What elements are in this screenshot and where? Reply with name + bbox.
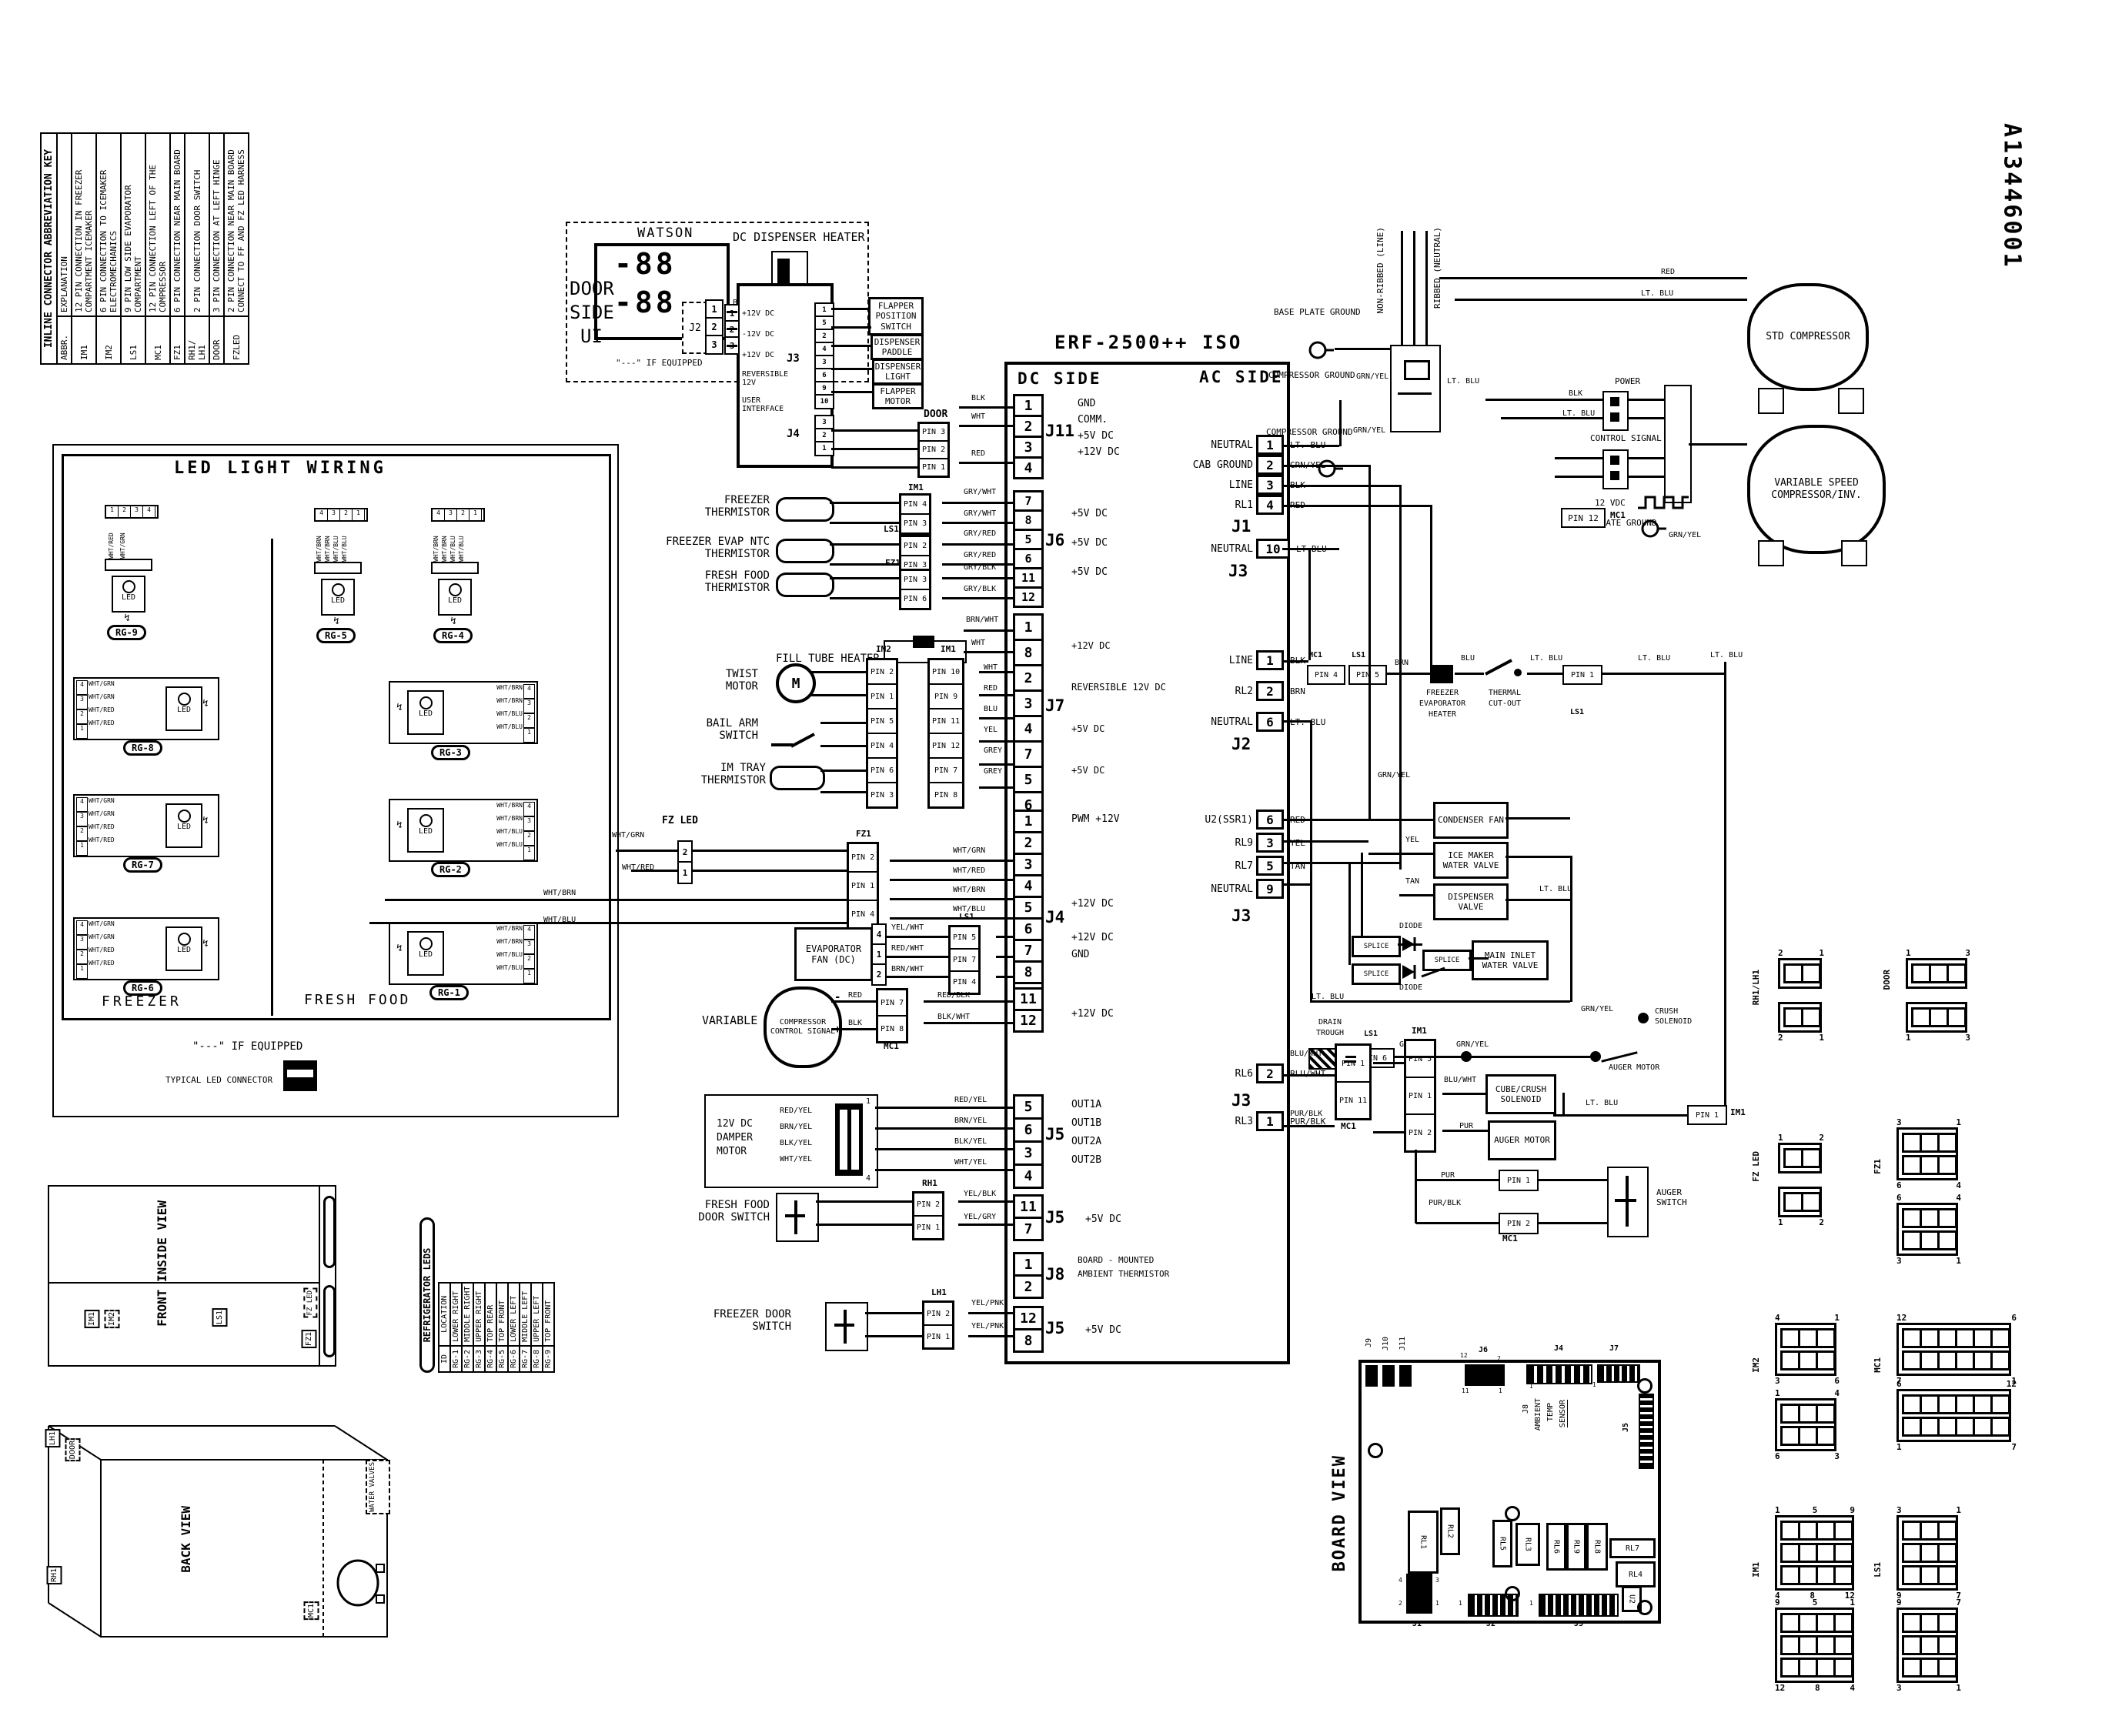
front-view-im2: IM2 [105,1310,120,1328]
board-view-title: BOARD VIEW [1330,1454,1349,1571]
back-view-door: DOOR [65,1438,81,1461]
led-rg8: 4321 WHT/GRNWHT/GRNWHT/REDWHT/RED LED ↯ [73,677,219,740]
freezer-thermistor-glyph [776,497,834,522]
vdc-label: 12 VDC [1595,499,1626,509]
thermal-cutout-label: THERMALCUT-OUT [1478,688,1532,709]
ground-icon [1318,456,1344,482]
front-view-title: FRONT INSIDE VIEW [155,1200,169,1327]
fz-door-switch-label: FREEZER DOORSWITCH [683,1308,791,1333]
document-number: A13446001 [1998,123,2025,269]
ring-terminal [1638,1013,1649,1023]
abbr-key-row: FZLED 2 PIN CONNECTION NEAR MAIN BOARD C… [224,133,249,364]
fz-door-switch-glyph [825,1302,868,1351]
back-view: LH1 DOOR RH1 BACK VIEW MC1 WATER VALVES [42,1420,396,1674]
led-rg1: LED ↯ WHT/BRNWHT/BRNWHT/BLUWHT/BLU 4321 [389,922,538,985]
dispenser-valve: DISPENSER VALVE [1433,883,1509,920]
evaporator-fan: EVAPORATORFAN (DC) [794,927,873,981]
abbr-key-col1: ABBR. [57,316,72,364]
watson-if-equipped: "---" IF EQUIPPED [616,359,703,369]
evap-fan-pins: 412 [871,926,887,986]
ground-icon [1308,337,1335,363]
abbr-key-row: DOOR 3 PIN CONNECTION AT LEFT HINGE [209,133,224,364]
mc1-block: PIN 1PIN 11 [1335,1043,1372,1120]
rg9-label: RG-9 [107,625,146,640]
compressor-relay-box [1390,345,1441,432]
ff-door-rh1-conn: PIN 2PIN 1 [912,1191,944,1240]
ff-door-switch-label: FRESH FOODDOOR SWITCH [662,1199,770,1224]
back-view-mc1: MC1 [304,1601,319,1620]
watson-j2-pins: 123 [705,302,723,355]
fresh-food-section-label: FRESH FOOD [304,993,410,1009]
zap-icon: ↯ [105,613,149,624]
neutral-cord-label: RIBBED (NEUTRAL) [1433,227,1443,309]
back-view-title: BACK VIEW [179,1506,193,1573]
door-side-ui-label: DOORSIDEUI [570,277,614,349]
dispenser-light: DISPENSER LIGHT [872,359,924,385]
ff-therm-conn: PIN 3PIN 6 [899,569,931,610]
abbr-key-row: FZ1 6 PIN CONNECTION NEAR MAIN BOARD [170,133,185,364]
dc-dispenser-heater-label: DC DISPENSER HEATER [733,231,865,244]
back-view-water-valves: WATER VALVES [366,1460,390,1514]
power-label: POWER [1615,377,1640,387]
auger-switch-label: AUGER SWITCH [1656,1188,1710,1207]
im2-conn: PIN 2PIN 1PIN 5PIN 4PIN 6PIN 3 [866,658,898,809]
abbr-key-col2: EXPLANATION [57,133,72,316]
ui-j3-label: J3 [787,352,800,365]
base-plate-ground-top: BASE PLATE GROUND [1274,308,1343,318]
rg2-label: RG-2 [431,862,470,877]
compressor-ground-2: COMPRESSOR GROUND [1266,428,1335,438]
abbr-key-row: IM1 12 PIN CONNECTION IN FREEZER COMPART… [72,133,96,364]
auger-switch-glyph [1607,1167,1649,1237]
j5c-pins: 128 [1013,1308,1044,1353]
abbr-key-rows: IM1 12 PIN CONNECTION IN FREEZER COMPART… [72,133,249,364]
front-inside-view: FRONT INSIDE VIEW IM1 IM2 LS1 FZ LED FZ1 [48,1185,336,1367]
ff-thermistor-label: FRESH FOODTHERMISTOR [677,569,770,594]
splice-3: SPLICE [1422,950,1472,971]
back-view-rh1: RH1 [47,1566,62,1584]
fzled-conn: 21 [677,843,693,884]
led-table-row: RG-1 LOWER RIGHT [450,1283,462,1372]
auger-motor: AUGER MOTOR [1488,1120,1556,1160]
led-table-row: RG-9 TOP FRONT [543,1283,554,1372]
j11-pins: 1234 [1013,396,1044,479]
j4-label: J4 [1045,908,1064,926]
bail-arm-switch-icon [770,722,824,753]
im1-conn: PIN 10PIN 9PIN 11PIN 12PIN 7PIN 8 [927,658,964,809]
damper-motor-box: 12V DCDAMPERMOTOR RED/YELBRN/YELBLK/YELW… [704,1094,878,1188]
if-equipped-note: "---" IF EQUIPPED [192,1040,302,1053]
ui-j3-pins: 152436910 [814,305,834,409]
led-rg2: LED ↯ WHT/BRNWHT/BRNWHT/BLUWHT/BLU 4321 [389,799,538,862]
rg1-label: RG-1 [429,985,469,1000]
pin12-box: PIN 12 [1561,508,1606,528]
watson-j2-label: J2 [682,302,708,354]
rg7-label: RG-7 [123,857,162,873]
control-connector [1602,449,1629,489]
j11-label: J11 [1045,422,1074,440]
j4-pins-a: 123456789 [1013,812,1044,1006]
front-view-fzled: FZ LED [303,1288,317,1318]
flapper-motor: FLAPPER MOTOR [872,383,924,409]
j8-label: J8 [1045,1265,1064,1284]
drain-trough-label: DRAINTROUGH [1307,1017,1353,1039]
j2-connector: LINE1BLKRL22BRNNEUTRAL6LT. BLU [1153,650,1325,743]
led-wiring-title: LED LIGHT WIRING [174,459,386,478]
j5b-pins: 117 [1013,1197,1044,1241]
ground-icon [1641,516,1667,542]
fz-door-lh1-conn: PIN 2PIN 1 [922,1300,954,1350]
ff-door-switch-glyph [776,1193,819,1242]
condenser-fan: CONDENSER FAN [1433,802,1509,839]
door-conn: PIN 3PIN 2PIN 1 [917,422,950,478]
led-table-row: RG-5 TOP FRONT [496,1283,508,1372]
back-view-lh1: LH1 [45,1429,61,1447]
main-inlet-water-valve: MAIN INLET WATER VALVE [1472,940,1549,980]
auger-motor-ground-label: AUGER MOTOR [1609,1063,1659,1073]
ui-in-pins: 123 [724,306,740,355]
led-rg9: 1234 WHT/REDWHT/GRN LED ↯ RG-9 [105,505,159,640]
twist-motor-label: TWISTMOTOR [697,668,758,693]
front-view-fz1: FZ1 [302,1330,317,1348]
j7-functions: +12V DCREVERSIBLE 12V DC+5V DC+5V DC [1071,616,1166,782]
j3bot-label: J3 [1231,1091,1251,1110]
j7-pins: 18234756 [1013,616,1044,819]
display-row2: -88 [614,286,677,320]
freezer-evap-heater-label: FREEZEREVAPORATORHEATER [1410,688,1475,720]
j7-label: J7 [1045,696,1064,715]
led-rg6: 4321 WHT/GRNWHT/GRNWHT/REDWHT/RED LED ↯ [73,917,219,980]
cube-crush-solenoid: CUBE/CRUSH SOLENOID [1485,1074,1556,1114]
abbreviation-key: INLINE CONNECTOR ABBREVIATION KEY ABBR. … [40,132,342,365]
wiring-diagram-page: A13446001 INLINE CONNECTOR ABBREVIATION … [0,0,2112,1736]
splice-2: SPLICE [1352,963,1401,985]
rg4-label: RG-4 [433,628,473,643]
rg3-label: RG-3 [431,745,470,760]
inverter-bar [1664,385,1692,503]
j3mid-connector: U2(SSR1)6REDRL93YELRL75TANNEUTRAL9 [1153,810,1305,902]
var-sig-mc1-conn: PIN 7PIN 8 [876,988,908,1043]
compressor-control-signal: COMPRESSOR CONTROL SIGNAL [764,987,842,1068]
led-column-divider [271,539,273,1016]
abbr-key-row: LS1 9 PIN LOW SIDE EVAPORATOR COMPARTMEN… [121,133,145,364]
led-rg4: 4321 WHT/BRNWHT/BRNWHT/BLUWHT/BLU LED ↯ … [431,508,485,643]
j6-label: J6 [1045,531,1064,549]
power-connector [1602,391,1629,431]
zap-icon: ↯ [431,616,476,627]
freezer-thermistor-label: FREEZERTHERMISTOR [677,494,770,519]
j4-functions-a: PWM +12V+12V DC+12V DCGND [1071,812,1120,964]
led-table-row: RG-8 UPPER LEFT [531,1283,543,1372]
abbr-key-row: MC1 12 PIN CONNECTION LEFT OF THE COMPRE… [145,133,170,364]
ring-terminal [1590,1051,1601,1062]
j5b-label: J5 [1045,1208,1064,1227]
display-row1: -88 [614,248,677,282]
freezer-therm-conn: PIN 4PIN 3 [899,493,931,535]
front-view-im1: IM1 [85,1310,100,1328]
abbr-key-title: INLINE CONNECTOR ABBREVIATION KEY [41,133,57,364]
ui-j4-label: J4 [787,428,800,440]
freezer-evap-heater-glyph [1430,665,1453,683]
line-cord-label: NON-RIBBED (LINE) [1376,227,1386,314]
zap-icon: ↯ [314,616,359,627]
door-conn-label: DOOR [924,409,947,421]
led-rg5: 4321 WHT/BRNWHT/BRNWHT/BLUWHT/BLU LED ↯ … [314,508,368,643]
led-table-row: RG-7 MIDDLE LEFT [520,1283,531,1372]
front-view-ls1: LS1 [212,1308,228,1327]
square-wave-icon [1636,492,1690,511]
abbr-key-row: IM2 6 PIN CONNECTION TO ICEMAKER ELECTRO… [96,133,121,364]
evap-thermistor-glyph [776,539,834,563]
j8-pins: 12 [1013,1254,1044,1299]
typical-led-connector-label: TYPICAL LED CONNECTOR [165,1076,272,1086]
freezer-section-label: FREEZER [102,994,182,1010]
crush-solenoid-label: CRUSH SOLENOID [1655,1007,1716,1027]
j6-pins: 78561112 [1013,492,1044,608]
ice-maker-water-valve: ICE MAKER WATER VALVE [1433,842,1509,879]
led-table-row: RG-3 UPPER RIGHT [473,1283,485,1372]
led-table-title: REFRIGERATOR LEDS [419,1217,435,1373]
variable-label: VARIABLE [702,1014,757,1027]
rg8-label: RG-8 [123,740,162,756]
control-signal-label: CONTROL SIGNAL [1590,434,1662,444]
j4-pins-b: 1112 [1013,990,1044,1033]
j3mid-label: J3 [1231,906,1251,925]
std-compressor: STD COMPRESSOR [1747,283,1869,391]
led-rg3: LED ↯ WHT/BRNWHT/BRNWHT/BLUWHT/BLU 4321 [389,681,538,744]
j5a-functions: OUT1AOUT1BOUT2AOUT2B [1071,1097,1101,1170]
thermal-cutout-icon [1484,656,1527,679]
abbr-key-row: RH1/ LH1 2 PIN CONNECTION DOOR SWITCH [185,133,209,364]
j6-functions: +5V DC+5V DC+5V DC [1071,492,1108,580]
j5c-label: J5 [1045,1319,1064,1337]
j5a-label: J5 [1045,1125,1064,1143]
j1-label: J1 [1231,517,1251,536]
im-tray-thermistor-glyph [770,766,825,790]
evap-thermistor-label: FREEZER EVAP NTCTHERMISTOR [662,536,770,560]
dc-side-label: DC SIDE [1018,369,1102,388]
ff-thermistor-glyph [776,573,834,597]
watson-title: WATSON [637,226,693,242]
j2-label: J2 [1231,735,1251,753]
fzled-label: FZ LED [662,816,698,827]
rg5-label: RG-5 [316,628,356,643]
led-table-row: RG-4 TOP REAR [485,1283,496,1372]
j5a-pins: 5634 [1013,1097,1044,1189]
dispenser-paddle: DISPENSER PADDLE [871,334,924,360]
twist-motor-glyph: M [776,663,816,703]
led-table-rows: RG-1 LOWER RIGHT RG-2 MIDDLE RIGHT RG-3 … [450,1283,554,1372]
diode-icon [1399,963,1419,980]
bail-arm-label: BAIL ARMSWITCH [697,717,758,742]
board-title: ERF-2500++ ISO [1054,332,1242,354]
im-tray-label: IM TRAYTHERMISTOR [689,762,766,786]
led-table-row: RG-6 LOWER LEFT [508,1283,520,1372]
ui-j4-pins: 321 [814,417,834,456]
flapper-position-switch: FLAPPER POSITION SWITCH [868,297,924,336]
j3top-label: J3 [1228,562,1248,580]
typical-led-connector-icon [283,1060,317,1091]
splice-1: SPLICE [1352,936,1401,957]
board-view-box: J9 J10 J11 J6 12 2 11 1 J4 1 J7 1 J8 AMB… [1358,1360,1661,1624]
compressor-ground-1: COMPRESSOR GROUND [1268,371,1338,381]
evap-fan-ls1-conn: PIN 5PIN 7PIN 4 [948,925,981,995]
variable-speed-compressor: VARIABLE SPEED COMPRESSOR/INV. [1747,425,1886,554]
led-rg7: 4321 WHT/GRNWHT/GRNWHT/REDWHT/RED LED ↯ [73,794,219,857]
led-table-row: RG-2 MIDDLE RIGHT [462,1283,473,1372]
j4-functions-b: +12V DC [1071,990,1114,1023]
j11-functions: GNDCOMM.+5V DC+12V DC [1078,396,1120,461]
